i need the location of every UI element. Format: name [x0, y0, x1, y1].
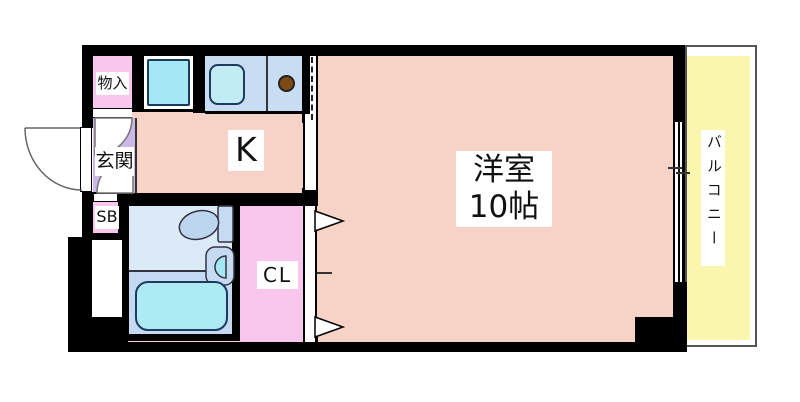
wall-right-upper: [673, 45, 685, 122]
kitchen-sink-icon: [209, 64, 245, 105]
entry-door-swing-arc-icon: [25, 128, 82, 190]
window-pane-line: [682, 122, 684, 282]
counter-divider: [266, 56, 268, 111]
wall-left-upper: [82, 45, 93, 128]
wall-right-lower: [673, 282, 687, 352]
bathroom-toilet-area: [129, 206, 232, 271]
main-room-label: 洋室 10帖: [456, 151, 552, 227]
window-pane-line: [678, 122, 680, 282]
storage-label: 物入: [96, 72, 129, 95]
main-room-name: 洋室: [473, 152, 535, 189]
window-sash-tick: [668, 167, 682, 169]
wall-storage-right: [132, 45, 144, 112]
washer-area: [144, 56, 193, 112]
kitchen-partition-lower: [303, 114, 318, 190]
stove-burner-icon: [278, 75, 295, 92]
wall-washer-counter: [193, 45, 205, 113]
kitchen-boundary-dashed-line: [311, 57, 313, 120]
shoebox-label: SB: [95, 206, 119, 229]
shoebox-door: [93, 193, 118, 202]
bathroom-bath-area: [129, 271, 232, 334]
wall-top: [82, 45, 685, 56]
floor-plan: 物入 玄関 SB K CL 洋室 10帖 バルコニー: [0, 0, 800, 402]
storage-door: [93, 108, 132, 118]
wall-connector-kitchen-closet: [302, 188, 318, 206]
wall-counter-end: [302, 45, 310, 123]
wall-bathroom-bottom: [122, 334, 240, 341]
window-sash-tick: [676, 172, 690, 174]
pipe-space: [92, 240, 122, 317]
balcony-label: バルコニー: [701, 130, 725, 266]
kitchen-label: K: [228, 130, 264, 171]
wall-bathroom-right: [232, 193, 240, 341]
entrance-label: 玄関: [95, 147, 134, 176]
closet-door: [303, 206, 317, 342]
window-icon: [673, 122, 685, 282]
wall-kitchen-south: [122, 193, 318, 206]
main-room-size: 10帖: [469, 189, 539, 226]
wall-bottom: [68, 342, 685, 352]
entry-door-icon: [80, 127, 92, 192]
washing-machine-icon: [147, 59, 190, 106]
closet-label: CL: [257, 261, 298, 289]
closet-door-tick: [317, 272, 332, 274]
wall-bathroom-left: [122, 193, 129, 341]
bathroom-divider-line: [129, 270, 232, 272]
